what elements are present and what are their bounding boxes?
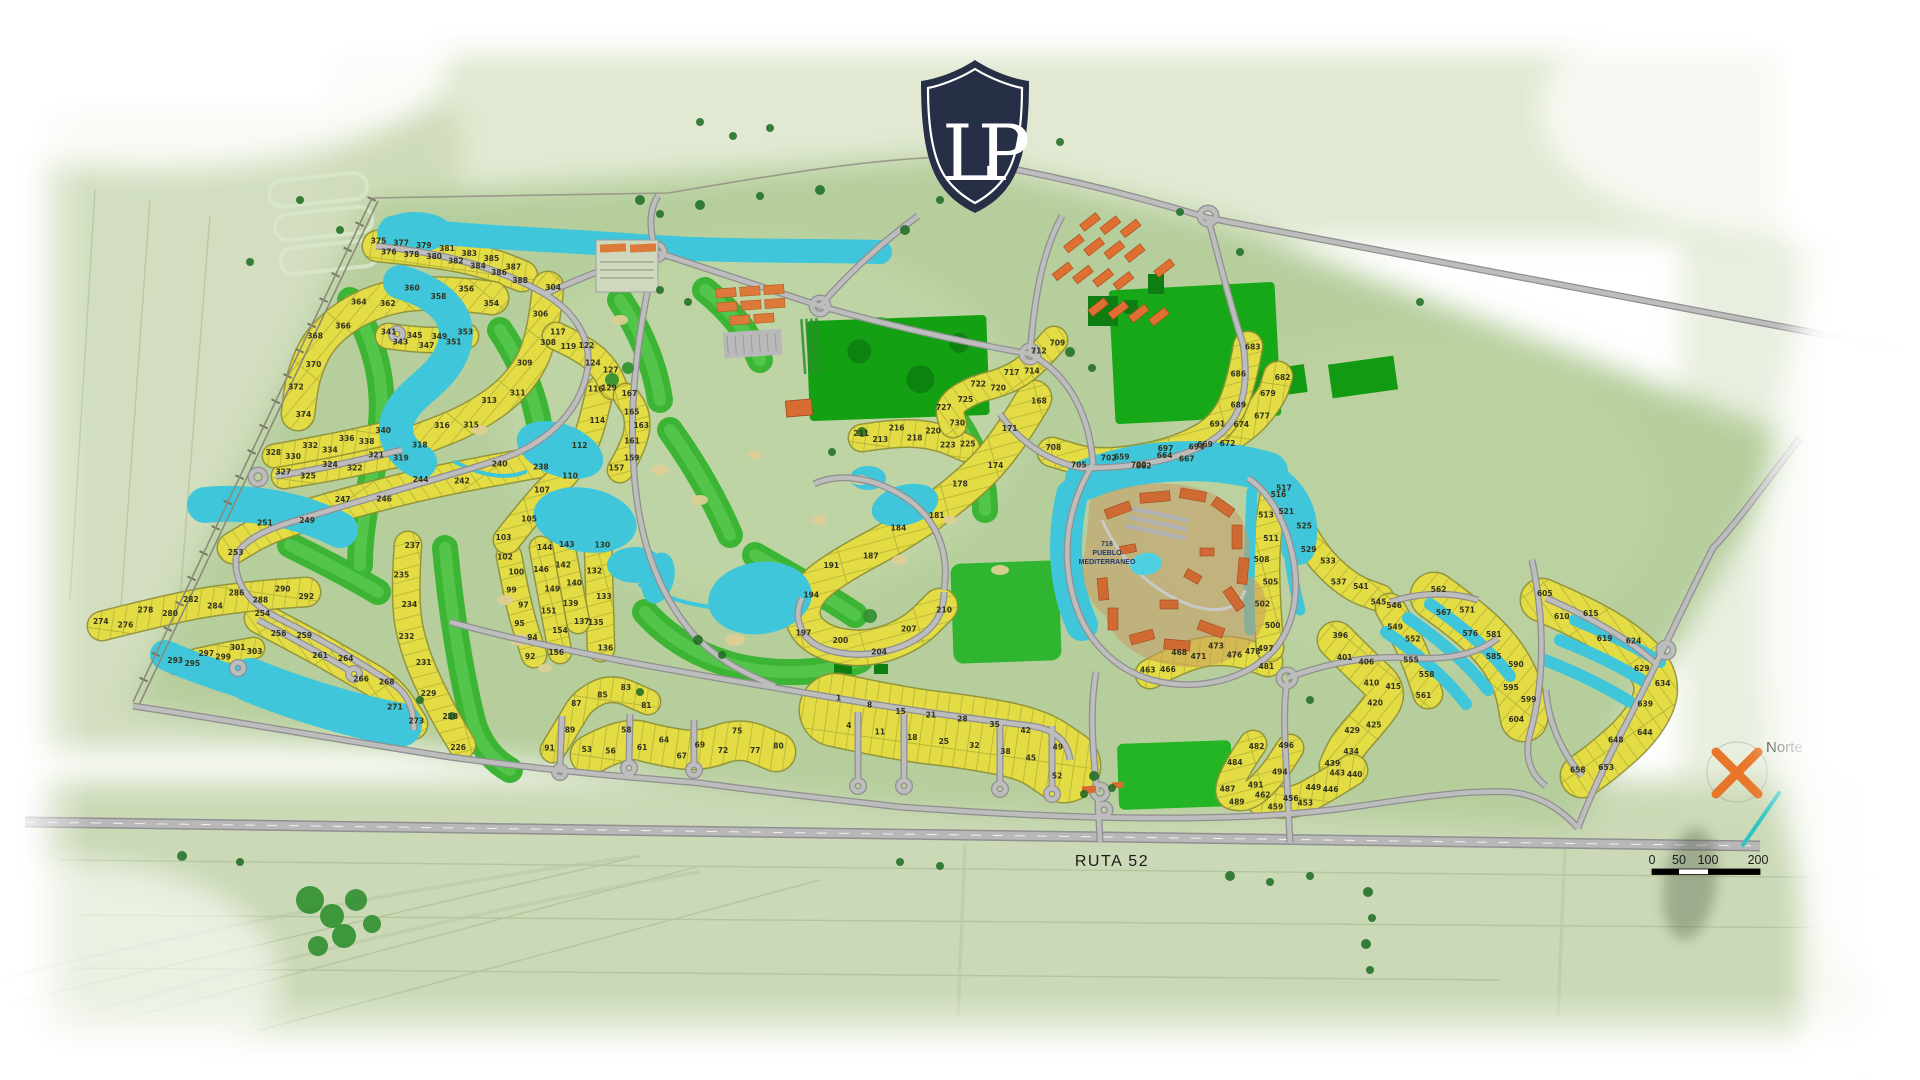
lot-number: 28 xyxy=(957,714,967,723)
lot-number: 497 xyxy=(1258,644,1274,653)
lot-number: 235 xyxy=(394,571,410,580)
lot-number: 517 xyxy=(1276,483,1292,492)
lot-number: 284 xyxy=(207,601,223,610)
lot-number: 674 xyxy=(1233,420,1249,429)
lot-number: 366 xyxy=(335,321,351,330)
lot-number: 521 xyxy=(1278,507,1294,516)
lot-number: 8 xyxy=(867,700,872,709)
lot-number: 453 xyxy=(1297,799,1313,808)
lot-number: 595 xyxy=(1503,683,1519,692)
lot-number: 301 xyxy=(230,643,246,652)
lot-number: 133 xyxy=(596,592,612,601)
lot-number: 38 xyxy=(1000,747,1010,756)
lot-number: 319 xyxy=(393,454,409,463)
lot-number: 476 xyxy=(1227,650,1243,659)
lot-number: 322 xyxy=(347,464,363,473)
lot-number: 42 xyxy=(1020,726,1030,735)
lot-number: 725 xyxy=(958,395,974,404)
lot-number: 364 xyxy=(351,297,367,306)
lot-number: 502 xyxy=(1254,600,1270,609)
lot-number: 694 xyxy=(1189,442,1205,451)
lot-number: 102 xyxy=(497,552,513,561)
lot-number: 561 xyxy=(1416,691,1432,700)
lot-number: 234 xyxy=(402,600,418,609)
lot-number: 274 xyxy=(93,617,109,626)
lot-number: 610 xyxy=(1554,612,1570,621)
lot-number: 634 xyxy=(1655,679,1671,688)
lot-number: 325 xyxy=(300,472,316,481)
lot-number: 99 xyxy=(506,586,516,595)
lot-number: 334 xyxy=(322,445,338,454)
lot-number: 462 xyxy=(1255,790,1271,799)
lot-number: 324 xyxy=(322,460,338,469)
lot-number: 18 xyxy=(907,733,917,742)
lot-number: 537 xyxy=(1331,578,1347,587)
lot-number: 94 xyxy=(527,633,537,642)
lot-number: 549 xyxy=(1387,622,1403,631)
lot-number: 174 xyxy=(988,461,1004,470)
lot-number: 253 xyxy=(228,548,244,557)
lot-number: 77 xyxy=(750,746,760,755)
lot-number: 525 xyxy=(1296,522,1312,531)
lot-number: 261 xyxy=(312,651,328,660)
lot-number: 541 xyxy=(1353,582,1369,591)
lot-number: 200 xyxy=(833,636,849,645)
lot-number: 25 xyxy=(939,737,949,746)
lot-number: 449 xyxy=(1306,783,1322,792)
master-plan-map: 3753763773783793803813823833843853863873… xyxy=(0,0,1920,1080)
lot-number: 259 xyxy=(296,631,312,640)
lot-number: 156 xyxy=(548,648,564,657)
lot-number: 473 xyxy=(1208,642,1224,651)
sports-field-center xyxy=(950,560,1061,664)
lot-number: 67 xyxy=(676,751,686,760)
lot-number: 376 xyxy=(381,248,397,257)
lot-number: 216 xyxy=(889,424,905,433)
lot-number: 297 xyxy=(198,649,214,658)
lot-number: 105 xyxy=(521,515,537,524)
lot-number: 140 xyxy=(566,578,582,587)
lot-number: 122 xyxy=(579,341,595,350)
lot-number: 137 xyxy=(574,617,590,626)
lot-number: 132 xyxy=(586,566,602,575)
lot-number: 484 xyxy=(1227,758,1243,767)
route-label-group: RUTA 52 xyxy=(1075,853,1149,870)
lot-number: 171 xyxy=(1002,424,1018,433)
lot-number: 439 xyxy=(1325,759,1341,768)
lot-number: 146 xyxy=(533,565,549,574)
lot-number: 387 xyxy=(505,263,521,272)
lot-number: 244 xyxy=(413,475,429,484)
lot-number: 345 xyxy=(407,331,423,340)
lot-number: 114 xyxy=(589,416,605,425)
lot-number: 336 xyxy=(339,434,355,443)
lot-number: 21 xyxy=(926,711,936,720)
lot-number: 288 xyxy=(253,596,269,605)
lot-number: 375 xyxy=(371,236,387,245)
lot-number: 64 xyxy=(659,736,669,745)
lot-number: 459 xyxy=(1268,802,1284,811)
lot-number: 278 xyxy=(138,605,154,614)
lot-number: 440 xyxy=(1347,770,1363,779)
lot-number: 338 xyxy=(359,437,375,446)
lot-number: 238 xyxy=(533,463,549,472)
lot-number: 386 xyxy=(491,268,507,277)
lot-number: 178 xyxy=(952,480,968,489)
lot-number: 143 xyxy=(559,540,575,549)
lot-number: 644 xyxy=(1637,728,1653,737)
lot-number: 720 xyxy=(990,384,1006,393)
lot-number: 163 xyxy=(633,421,649,430)
lot-number: 327 xyxy=(275,468,291,477)
lot-number: 489 xyxy=(1229,797,1245,806)
lot-number: 347 xyxy=(419,341,435,350)
lot-number: 52 xyxy=(1052,772,1062,781)
lot-number: 494 xyxy=(1272,768,1288,777)
lot-number: 151 xyxy=(541,607,557,616)
lot-number: 97 xyxy=(518,601,528,610)
lot-number: 207 xyxy=(901,625,917,634)
lot-number: 204 xyxy=(871,648,887,657)
lot-number: 585 xyxy=(1486,652,1502,661)
lot-number: 500 xyxy=(1265,621,1281,630)
lot-number: 232 xyxy=(399,632,415,641)
lot-number: 149 xyxy=(544,584,560,593)
lot-number: 229 xyxy=(421,689,437,698)
lot-number: 415 xyxy=(1385,682,1401,691)
lot-number: 429 xyxy=(1344,726,1360,735)
lot-number: 615 xyxy=(1583,609,1599,618)
lot-number: 708 xyxy=(1046,443,1062,452)
lot-number: 167 xyxy=(622,389,638,398)
lot-number: 135 xyxy=(588,618,604,627)
lot-number: 496 xyxy=(1278,741,1294,750)
lot-number: 49 xyxy=(1053,742,1063,751)
lot-number: 571 xyxy=(1459,606,1475,615)
lot-number: 218 xyxy=(907,434,923,443)
lot-number: 53 xyxy=(582,745,592,754)
lot-number: 722 xyxy=(970,379,986,388)
lot-number: 282 xyxy=(183,595,199,604)
lot-number: 11 xyxy=(875,728,885,737)
lot-number: 356 xyxy=(458,285,474,294)
lot-number: 117 xyxy=(550,328,566,337)
lot-number: 354 xyxy=(483,299,499,308)
lot-number: 311 xyxy=(510,389,526,398)
lot-number: 1 xyxy=(836,694,841,703)
lot-number: 555 xyxy=(1403,656,1419,665)
lot-number: 226 xyxy=(450,743,466,752)
lot-number: 240 xyxy=(492,459,508,468)
lot-number: 370 xyxy=(306,360,322,369)
lot-number: 381 xyxy=(439,244,455,253)
lot-number: 481 xyxy=(1259,662,1275,671)
lot-number: 87 xyxy=(571,699,581,708)
lot-number: 672 xyxy=(1220,439,1236,448)
lot-number: 529 xyxy=(1301,545,1317,554)
lot-number: 406 xyxy=(1359,657,1375,666)
lot-number: 443 xyxy=(1329,769,1345,778)
lot-number: 328 xyxy=(265,448,281,457)
lot-number: 210 xyxy=(936,606,952,615)
lot-number: 107 xyxy=(534,486,550,495)
lot-number: 679 xyxy=(1260,389,1276,398)
lot-number: 290 xyxy=(275,584,291,593)
lot-number: 295 xyxy=(184,659,200,668)
lot-number: 712 xyxy=(1031,347,1047,356)
lot-number: 658 xyxy=(1570,766,1586,775)
lot-number: 280 xyxy=(162,609,178,618)
lot-number: 225 xyxy=(960,439,976,448)
lot-number: 91 xyxy=(544,743,554,752)
lot-number: 313 xyxy=(481,396,497,405)
lot-number: 187 xyxy=(863,552,879,561)
lot-number: 15 xyxy=(895,707,905,716)
lot-number: 273 xyxy=(408,717,424,726)
scale-tick-50: 50 xyxy=(1672,853,1686,867)
lot-number: 362 xyxy=(380,299,396,308)
lot-number: 309 xyxy=(517,359,533,368)
lot-number: 639 xyxy=(1637,699,1653,708)
lot-number: 683 xyxy=(1245,342,1261,351)
lot-number: 103 xyxy=(496,533,512,542)
lot-number: 321 xyxy=(368,451,384,460)
lot-number: 165 xyxy=(624,407,640,416)
lot-number: 619 xyxy=(1597,634,1613,643)
lot-number: 220 xyxy=(925,427,941,436)
lot-number: 85 xyxy=(597,691,607,700)
lot-number: 505 xyxy=(1263,577,1279,586)
lot-number: 576 xyxy=(1462,629,1478,638)
lot-number: 45 xyxy=(1026,754,1036,763)
lot-number: 92 xyxy=(525,652,535,661)
lot-number: 266 xyxy=(353,675,369,684)
lot-number: 144 xyxy=(537,543,553,552)
lot-number: 667 xyxy=(1179,455,1195,464)
lot-number: 213 xyxy=(872,435,888,444)
lot-number: 677 xyxy=(1254,412,1270,421)
lot-number: 653 xyxy=(1598,763,1614,772)
lot-number: 686 xyxy=(1230,370,1246,379)
lot-number: 32 xyxy=(969,741,979,750)
clubhouse xyxy=(785,399,812,417)
lot-number: 154 xyxy=(552,626,568,635)
lot-number: 184 xyxy=(891,524,907,533)
scale-tick-200: 200 xyxy=(1748,853,1769,867)
lot-number: 730 xyxy=(949,418,965,427)
lot-number: 567 xyxy=(1436,608,1452,617)
lot-number: 142 xyxy=(555,561,571,570)
lot-number: 251 xyxy=(257,519,273,528)
lot-number: 254 xyxy=(255,609,271,618)
lot-number: 276 xyxy=(118,620,134,629)
lot-number: 194 xyxy=(803,591,819,600)
lot-number: 61 xyxy=(637,743,647,752)
lot-number: 581 xyxy=(1486,630,1502,639)
pueblo-name-line2: MEDITERRANEO xyxy=(1079,559,1136,566)
lot-number: 292 xyxy=(298,592,314,601)
lot-number: 168 xyxy=(1031,396,1047,405)
lot-number: 231 xyxy=(416,658,432,667)
lot-number: 717 xyxy=(1004,368,1020,377)
lot-number: 332 xyxy=(302,441,318,450)
ruta-52-label: RUTA 52 xyxy=(1075,853,1149,870)
lot-number: 197 xyxy=(796,629,812,638)
lot-number: 112 xyxy=(572,441,588,450)
lot-number: 689 xyxy=(1230,400,1246,409)
lot-number: 129 xyxy=(601,383,617,392)
lot-number: 604 xyxy=(1508,715,1524,724)
lot-number: 482 xyxy=(1249,742,1265,751)
lot-number: 434 xyxy=(1343,747,1359,756)
lot-number: 181 xyxy=(929,511,945,520)
lot-number: 380 xyxy=(426,252,442,261)
lot-number: 136 xyxy=(598,643,614,652)
lot-number: 341 xyxy=(381,328,397,337)
lot-number: 340 xyxy=(375,426,391,435)
sports-compound xyxy=(596,240,658,292)
lot-number: 157 xyxy=(609,464,625,473)
lot-number: 211 xyxy=(853,429,869,438)
lot-number: 562 xyxy=(1431,585,1447,594)
lot-number: 58 xyxy=(621,726,631,735)
sports-field-south xyxy=(1117,740,1233,810)
lot-number: 223 xyxy=(940,441,956,450)
lot-number: 487 xyxy=(1220,784,1236,793)
lot-number: 396 xyxy=(1332,631,1348,640)
lot-number: 315 xyxy=(463,421,479,430)
lot-number: 513 xyxy=(1258,511,1274,520)
lot-number: 351 xyxy=(446,338,462,347)
pueblo-number-label: 716 xyxy=(1101,541,1113,548)
lot-number: 463 xyxy=(1140,665,1156,674)
lot-number: 353 xyxy=(457,328,473,337)
lot-number: 691 xyxy=(1209,420,1225,429)
lot-number: 304 xyxy=(545,283,561,292)
lot-number: 4 xyxy=(846,721,851,730)
lot-number: 127 xyxy=(603,365,619,374)
lot-number: 383 xyxy=(461,249,477,258)
lot-number: 468 xyxy=(1171,648,1187,657)
lot-number: 705 xyxy=(1071,461,1087,470)
lot-number: 95 xyxy=(514,619,524,628)
lot-number: 264 xyxy=(338,654,354,663)
lot-number: 385 xyxy=(484,254,500,263)
lot-number: 511 xyxy=(1263,534,1279,543)
lot-number: 110 xyxy=(562,472,578,481)
lot-number: 374 xyxy=(296,410,312,419)
lot-number: 89 xyxy=(565,725,575,734)
lot-number: 702 xyxy=(1101,453,1117,462)
lot-number: 358 xyxy=(431,292,447,301)
lot-number: 83 xyxy=(621,683,631,692)
lot-number: 552 xyxy=(1405,635,1421,644)
lot-number: 491 xyxy=(1248,781,1264,790)
lot-number: 379 xyxy=(416,241,432,250)
lot-number: 159 xyxy=(624,453,640,462)
lot-number: 56 xyxy=(605,747,615,756)
lot-number: 237 xyxy=(405,541,421,550)
lot-number: 605 xyxy=(1537,589,1553,598)
lot-number: 316 xyxy=(434,421,450,430)
lot-number: 124 xyxy=(585,359,601,368)
lot-number: 466 xyxy=(1160,665,1176,674)
lot-number: 372 xyxy=(288,382,304,391)
lot-number: 558 xyxy=(1419,670,1435,679)
lot-number: 590 xyxy=(1508,660,1524,669)
lot-number: 318 xyxy=(412,440,428,449)
lot-number: 700 xyxy=(1131,460,1147,469)
lot-number: 139 xyxy=(563,599,579,608)
lot-number: 75 xyxy=(732,727,742,736)
lot-number: 624 xyxy=(1626,637,1642,646)
lot-number: 629 xyxy=(1634,664,1650,673)
lot-number: 714 xyxy=(1024,367,1040,376)
lot-number: 546 xyxy=(1386,601,1402,610)
lot-number: 161 xyxy=(624,437,640,446)
lot-number: 228 xyxy=(442,712,458,721)
lot-number: 256 xyxy=(271,629,287,638)
lot-number: 299 xyxy=(215,653,231,662)
lot-number: 72 xyxy=(718,746,728,755)
master-plan-page: 3753763773783793803813823833843853863873… xyxy=(0,0,1920,1080)
lot-number: 100 xyxy=(508,568,524,577)
lot-number: 330 xyxy=(285,452,301,461)
lot-number: 727 xyxy=(936,403,952,412)
lot-number: 709 xyxy=(1050,338,1066,347)
lot-number: 247 xyxy=(335,495,351,504)
lot-number: 648 xyxy=(1608,736,1624,745)
lot-number: 249 xyxy=(299,516,315,525)
lot-number: 377 xyxy=(393,239,409,248)
lot-number: 456 xyxy=(1283,794,1299,803)
lot-number: 268 xyxy=(379,678,395,687)
lot-number: 119 xyxy=(561,342,577,351)
lot-number: 599 xyxy=(1521,695,1537,704)
lot-number: 35 xyxy=(989,720,999,729)
scale-tick-100: 100 xyxy=(1698,853,1719,867)
lot-number: 425 xyxy=(1366,721,1382,730)
lot-number: 246 xyxy=(376,495,392,504)
lot-number: 360 xyxy=(404,284,420,293)
lot-number: 306 xyxy=(533,310,549,319)
lot-number: 191 xyxy=(823,561,839,570)
lot-number: 697 xyxy=(1158,444,1174,453)
lot-number: 368 xyxy=(307,331,323,340)
lot-number: 308 xyxy=(540,338,556,347)
lot-number: 410 xyxy=(1364,679,1380,688)
lot-number: 471 xyxy=(1191,652,1207,661)
lot-number: 271 xyxy=(387,702,403,711)
scale-tick-0: 0 xyxy=(1649,853,1656,867)
lot-number: 533 xyxy=(1320,557,1336,566)
lot-number: 378 xyxy=(404,250,420,259)
lot-number: 242 xyxy=(454,476,470,485)
lot-number: 293 xyxy=(167,656,183,665)
lot-number: 420 xyxy=(1367,698,1383,707)
lot-number: 81 xyxy=(641,701,651,710)
lot-number: 80 xyxy=(773,742,783,751)
pueblo-name-line1: PUEBLO xyxy=(1092,550,1122,557)
lot-number: 303 xyxy=(247,647,263,656)
lot-number: 388 xyxy=(512,276,528,285)
lot-number: 69 xyxy=(695,741,705,750)
lot-number: 446 xyxy=(1323,785,1339,794)
lot-number: 508 xyxy=(1254,555,1270,564)
lot-number: 130 xyxy=(595,540,611,549)
lot-number: 401 xyxy=(1337,653,1353,662)
lot-number: 682 xyxy=(1275,373,1291,382)
